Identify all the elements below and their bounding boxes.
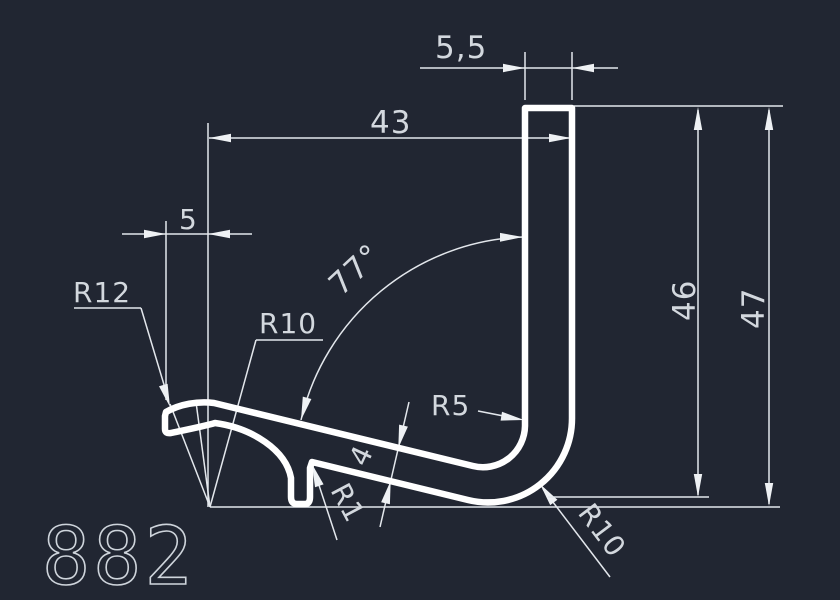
- arrow: [500, 233, 523, 242]
- dim-top-thickness-label: 5,5: [435, 30, 487, 66]
- arrow: [572, 64, 594, 72]
- arrow: [301, 397, 311, 420]
- profile-outline: [165, 108, 572, 504]
- arrow: [694, 474, 702, 497]
- leader-line-r12: [141, 308, 168, 398]
- arrow: [549, 134, 571, 142]
- arrow: [209, 134, 231, 142]
- cad-drawing-canvas[interactable]: 5,5 43 5 77° R12 R10 R5 4 R1 R10 46 47 8…: [0, 0, 840, 600]
- construction-ray: [170, 404, 210, 507]
- radius-crest-label: R10: [259, 307, 317, 340]
- profile-drawing: 5,5 43 5 77° R12 R10 R5 4 R1 R10 46 47 8…: [0, 0, 840, 600]
- dim-overall-width-label: 43: [370, 105, 411, 141]
- part-number: 882: [42, 510, 196, 600]
- radius-inner-corner-label: R5: [431, 389, 470, 422]
- dim-left-offset-label: 5: [179, 203, 198, 236]
- arrow: [381, 481, 391, 504]
- arrow: [503, 64, 525, 72]
- arrow: [765, 107, 773, 130]
- arrow: [765, 483, 773, 506]
- dim-line-leg-thickness: [380, 402, 409, 527]
- arrow: [694, 107, 702, 130]
- arrow: [144, 230, 166, 238]
- dim-height-inner-label: 46: [667, 280, 703, 321]
- arrow: [159, 384, 170, 407]
- arrow: [398, 425, 408, 448]
- radius-left-lip-label: R12: [73, 276, 131, 309]
- arrow: [208, 230, 230, 238]
- arrow: [501, 412, 524, 421]
- arrow: [540, 484, 557, 505]
- dim-height-overall-label: 47: [736, 288, 772, 329]
- dimension-labels: 5,5 43 5 77° R12 R10 R5 4 R1 R10 46 47: [73, 30, 772, 564]
